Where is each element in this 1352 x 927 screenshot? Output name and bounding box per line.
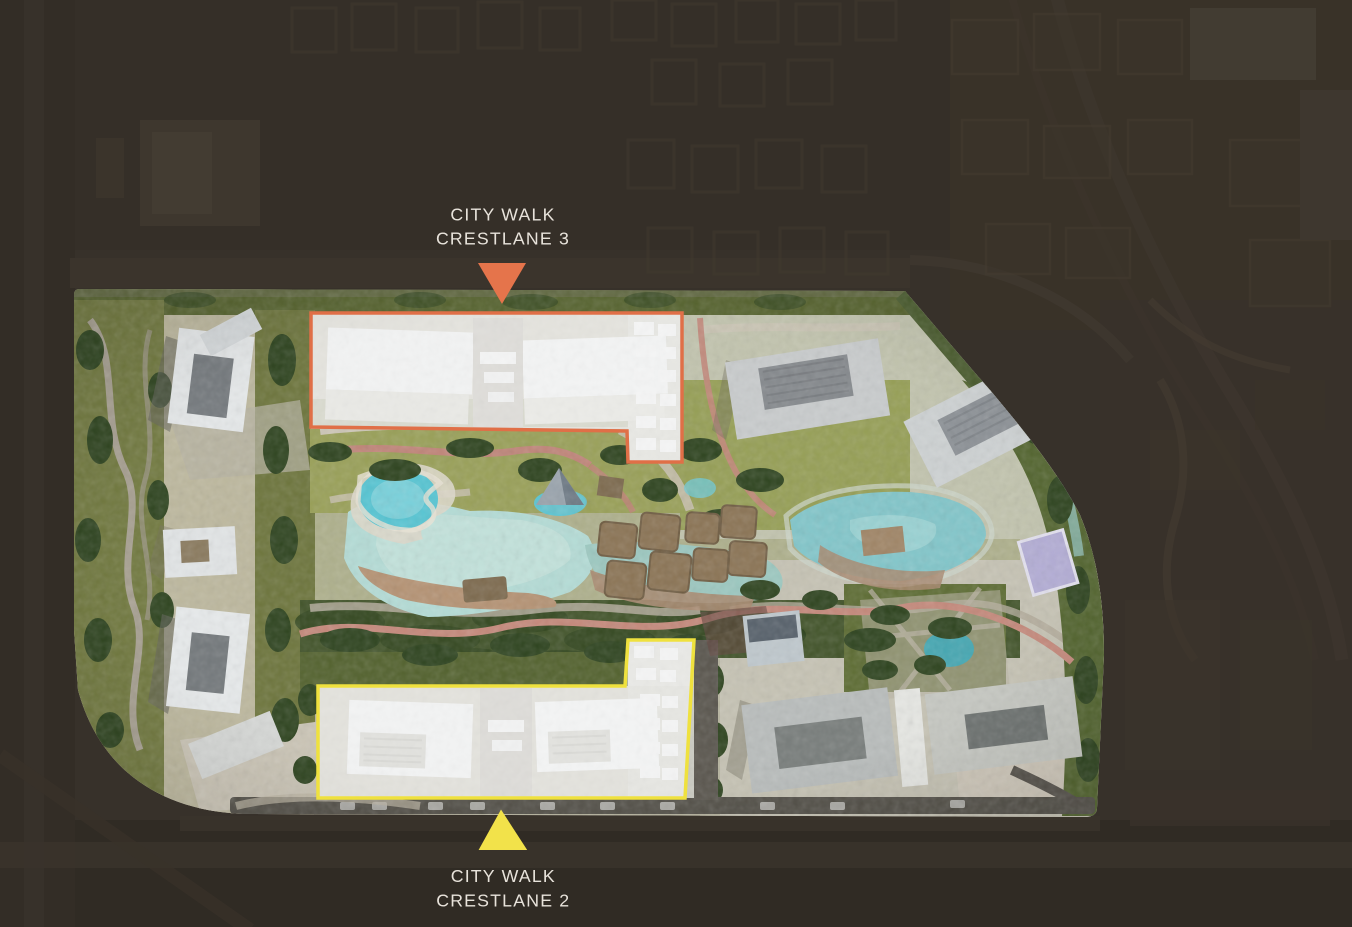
svg-text:CITY WALK: CITY WALK	[451, 866, 556, 886]
svg-text:CITY WALK: CITY WALK	[450, 204, 555, 224]
svg-text:CRESTLANE 2: CRESTLANE 2	[436, 891, 570, 911]
svg-text:CRESTLANE 3: CRESTLANE 3	[436, 229, 570, 249]
